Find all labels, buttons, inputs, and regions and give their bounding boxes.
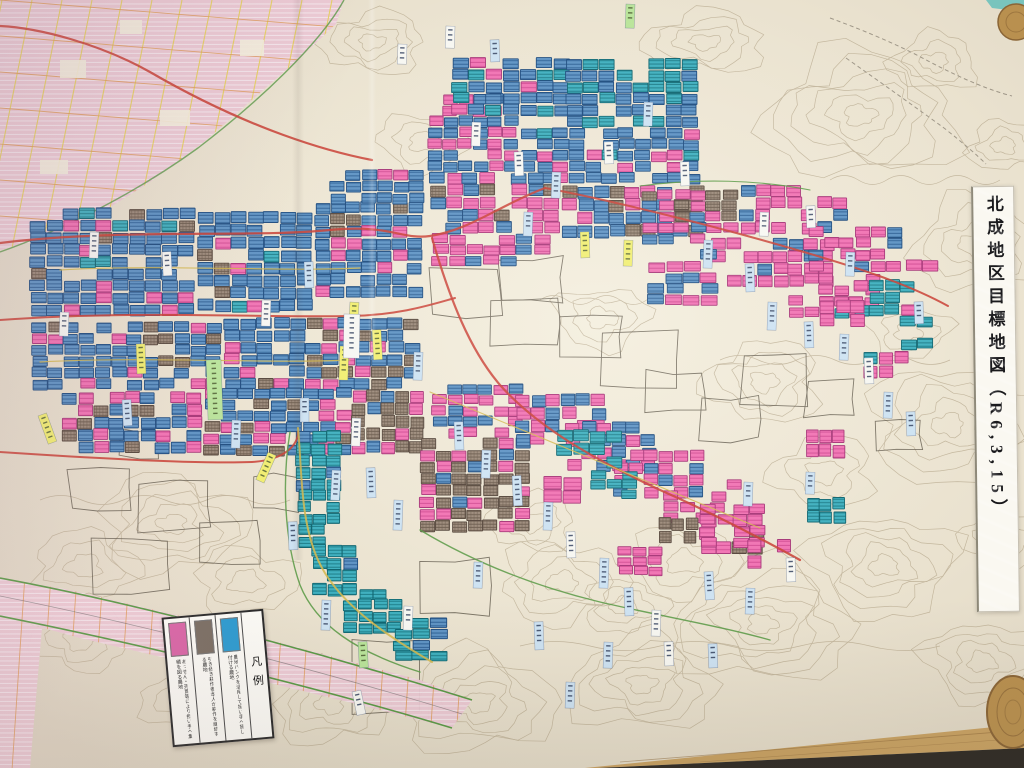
parcel bbox=[200, 226, 215, 237]
parcel bbox=[643, 235, 657, 244]
parcel bbox=[30, 280, 45, 290]
parcel bbox=[564, 478, 581, 490]
parcel bbox=[454, 93, 469, 103]
parcel bbox=[430, 172, 445, 183]
parcel bbox=[641, 435, 654, 446]
parcel bbox=[684, 151, 699, 161]
parcel bbox=[305, 344, 320, 354]
parcel bbox=[378, 181, 392, 191]
parcel bbox=[198, 237, 213, 248]
parcel bbox=[583, 106, 598, 116]
parcel bbox=[537, 70, 552, 80]
parcel bbox=[488, 139, 501, 149]
map-label-strip bbox=[206, 359, 223, 419]
parcel bbox=[432, 406, 446, 415]
parcel bbox=[160, 378, 174, 388]
parcel bbox=[742, 185, 756, 196]
parcel bbox=[723, 190, 737, 199]
parcel bbox=[377, 274, 391, 284]
parcel bbox=[545, 222, 560, 233]
parcel bbox=[869, 305, 883, 315]
parcel bbox=[468, 104, 483, 114]
parcel bbox=[684, 141, 699, 151]
parcel bbox=[47, 269, 62, 279]
parcel bbox=[741, 223, 755, 234]
parcel bbox=[546, 408, 559, 419]
parcel bbox=[319, 389, 334, 399]
parcel bbox=[689, 487, 702, 497]
parcel bbox=[403, 319, 418, 329]
parcel bbox=[499, 461, 513, 471]
parcel bbox=[146, 245, 161, 255]
parcel bbox=[590, 443, 605, 454]
map-label-strip bbox=[664, 642, 674, 666]
parcel bbox=[290, 343, 305, 353]
parcel bbox=[537, 129, 552, 139]
parcel bbox=[569, 173, 584, 183]
parcel bbox=[722, 201, 736, 210]
parcel bbox=[396, 441, 409, 452]
parcel bbox=[553, 162, 568, 172]
parcel bbox=[453, 497, 467, 507]
parcel bbox=[820, 301, 834, 313]
parcel bbox=[512, 184, 527, 195]
parcel bbox=[317, 275, 331, 285]
parcel bbox=[622, 490, 636, 498]
map-label-strip bbox=[122, 400, 132, 426]
parcel bbox=[503, 128, 516, 138]
parcel bbox=[871, 227, 885, 237]
parcel bbox=[819, 274, 833, 283]
parcel bbox=[469, 82, 484, 92]
parcel bbox=[373, 613, 386, 623]
map-label-strip bbox=[745, 588, 755, 614]
parcel bbox=[264, 276, 279, 287]
parcel bbox=[191, 356, 205, 366]
parcel bbox=[666, 295, 682, 305]
parcel bbox=[517, 435, 530, 446]
parcel bbox=[448, 173, 463, 184]
parcel bbox=[464, 185, 479, 196]
parcel bbox=[500, 245, 515, 254]
parcel bbox=[748, 556, 761, 568]
map-label-strip bbox=[551, 172, 561, 198]
parcel bbox=[178, 293, 193, 303]
parcel bbox=[327, 559, 341, 570]
parcel bbox=[683, 117, 698, 127]
parcel bbox=[444, 163, 457, 173]
parcel bbox=[607, 480, 621, 488]
parcel bbox=[563, 491, 580, 503]
parcel bbox=[80, 305, 95, 315]
parcel bbox=[282, 251, 297, 262]
parcel bbox=[635, 150, 650, 160]
parcel bbox=[394, 250, 408, 260]
parcel bbox=[48, 293, 63, 303]
parcel bbox=[393, 286, 407, 296]
parcel bbox=[420, 510, 434, 520]
map-label-strip bbox=[845, 252, 855, 276]
parcel bbox=[315, 240, 329, 250]
parcel bbox=[610, 187, 624, 198]
parcel bbox=[188, 405, 202, 416]
parcel bbox=[431, 186, 446, 197]
parcel bbox=[515, 521, 529, 531]
map-label-strip bbox=[643, 102, 653, 126]
parcel bbox=[393, 194, 407, 204]
parcel bbox=[504, 82, 519, 92]
parcel bbox=[625, 187, 639, 198]
parcel bbox=[362, 262, 376, 272]
parcel bbox=[81, 345, 95, 355]
map-label-strip bbox=[372, 330, 383, 360]
map-label-strip bbox=[304, 262, 314, 288]
parcel bbox=[331, 273, 345, 283]
parcel bbox=[408, 215, 422, 225]
parcel bbox=[47, 256, 62, 266]
parcel bbox=[488, 117, 501, 127]
parcel bbox=[622, 480, 636, 488]
map-label-strip bbox=[413, 352, 423, 380]
parcel bbox=[413, 641, 429, 650]
parcel bbox=[97, 270, 112, 280]
parcel bbox=[353, 391, 366, 402]
parcel bbox=[128, 322, 142, 332]
parcel bbox=[431, 629, 447, 638]
parcel bbox=[666, 82, 681, 92]
parcel bbox=[359, 624, 372, 634]
parcel bbox=[690, 475, 703, 485]
parcel bbox=[886, 292, 900, 302]
map-label-strip bbox=[330, 470, 341, 500]
parcel bbox=[706, 212, 720, 221]
parcel bbox=[591, 471, 605, 479]
parcel bbox=[618, 547, 631, 555]
parcel bbox=[453, 69, 468, 79]
parcel bbox=[561, 394, 574, 405]
parcel bbox=[527, 198, 542, 209]
parcel bbox=[483, 438, 497, 448]
parcel bbox=[49, 335, 63, 345]
parcel bbox=[618, 151, 633, 161]
parcel bbox=[437, 509, 451, 519]
parcel bbox=[172, 417, 186, 428]
parcel bbox=[187, 442, 201, 453]
parcel bbox=[820, 313, 834, 325]
parcel bbox=[79, 442, 93, 453]
map-label-strip bbox=[358, 642, 368, 668]
parcel bbox=[484, 498, 498, 508]
parcel bbox=[159, 334, 173, 344]
parcel bbox=[478, 385, 492, 394]
parcel bbox=[734, 538, 749, 547]
parcel bbox=[642, 192, 656, 201]
parcel bbox=[147, 293, 162, 303]
parcel bbox=[363, 251, 377, 261]
map-label-strip bbox=[703, 240, 713, 268]
parcel bbox=[631, 450, 644, 460]
parcel bbox=[409, 287, 423, 297]
map-label-strip bbox=[680, 162, 690, 186]
parcel bbox=[674, 476, 687, 486]
parcel bbox=[342, 546, 356, 557]
parcel bbox=[819, 285, 833, 294]
parcel bbox=[281, 212, 296, 223]
parcel bbox=[888, 238, 902, 248]
parcel bbox=[343, 583, 357, 594]
parcel bbox=[727, 238, 741, 249]
parcel bbox=[464, 394, 478, 403]
parcel bbox=[648, 294, 664, 304]
parcel bbox=[587, 150, 602, 160]
parcel bbox=[327, 430, 341, 441]
parcel bbox=[240, 331, 255, 341]
parcel bbox=[113, 367, 127, 377]
parcel bbox=[857, 237, 871, 247]
parcel bbox=[633, 548, 646, 556]
parcel bbox=[221, 411, 236, 421]
parcel bbox=[247, 225, 262, 236]
parcel bbox=[145, 281, 160, 291]
parcel bbox=[728, 275, 742, 286]
parcel bbox=[367, 428, 380, 439]
parcel bbox=[255, 422, 270, 432]
parcel bbox=[643, 223, 657, 232]
map-label-strip bbox=[767, 302, 777, 330]
parcel bbox=[790, 308, 804, 317]
map-label-strip bbox=[883, 392, 893, 418]
parcel bbox=[870, 293, 884, 303]
legend-swatch-pink bbox=[168, 622, 189, 657]
parcel bbox=[594, 201, 608, 212]
parcel bbox=[323, 319, 338, 329]
parcel bbox=[232, 301, 247, 312]
parcel bbox=[355, 366, 370, 376]
parcel bbox=[775, 276, 789, 287]
parcel bbox=[591, 481, 605, 489]
parcel bbox=[313, 490, 325, 500]
parcel bbox=[94, 429, 108, 440]
parcel bbox=[253, 446, 268, 456]
parcel bbox=[377, 251, 391, 261]
map-label-strip bbox=[623, 240, 633, 266]
parcel bbox=[113, 346, 127, 356]
parcel bbox=[562, 226, 576, 237]
parcel bbox=[568, 83, 583, 93]
parcel bbox=[592, 409, 605, 420]
parcel bbox=[95, 418, 109, 429]
parcel bbox=[95, 305, 110, 315]
map-label-strip bbox=[565, 682, 575, 708]
parcel bbox=[516, 508, 530, 518]
parcel bbox=[659, 518, 671, 529]
parcel bbox=[360, 590, 373, 600]
parcel bbox=[683, 273, 699, 283]
parcel bbox=[409, 442, 422, 453]
parcel bbox=[902, 340, 917, 350]
parcel bbox=[582, 118, 597, 128]
parcel bbox=[706, 191, 720, 200]
parcel bbox=[175, 357, 189, 367]
parcel bbox=[33, 380, 47, 390]
parcel bbox=[94, 406, 108, 417]
parcel bbox=[407, 264, 421, 274]
parcel bbox=[224, 353, 239, 363]
parcel bbox=[142, 418, 156, 429]
parcel bbox=[327, 513, 339, 523]
legend-swatch-blue bbox=[219, 617, 240, 652]
parcel bbox=[649, 547, 662, 555]
parcel bbox=[833, 446, 845, 458]
parcel bbox=[616, 106, 631, 116]
parcel bbox=[554, 139, 569, 149]
parcel bbox=[459, 116, 472, 126]
parcel bbox=[382, 429, 395, 440]
parcel bbox=[499, 474, 513, 484]
parcel bbox=[373, 590, 386, 600]
parcel bbox=[207, 323, 221, 333]
parcel bbox=[531, 408, 544, 419]
parcel bbox=[337, 410, 352, 420]
parcel bbox=[270, 411, 285, 421]
parcel bbox=[30, 222, 45, 232]
parcel bbox=[486, 69, 501, 79]
parcel bbox=[62, 418, 76, 429]
parcel bbox=[483, 255, 498, 264]
parcel bbox=[381, 403, 394, 414]
parcel bbox=[328, 545, 342, 556]
parcel bbox=[665, 71, 680, 81]
parcel bbox=[618, 558, 631, 566]
parcel bbox=[388, 367, 403, 377]
parcel bbox=[578, 212, 592, 223]
parcel bbox=[31, 292, 46, 302]
parcel bbox=[377, 193, 391, 203]
parcel bbox=[674, 200, 688, 209]
parcel bbox=[377, 240, 391, 250]
parcel bbox=[701, 538, 716, 547]
parcel bbox=[833, 198, 847, 209]
parcel bbox=[32, 346, 46, 356]
parcel bbox=[463, 417, 477, 426]
parcel bbox=[667, 93, 682, 103]
parcel bbox=[533, 396, 546, 407]
parcel bbox=[96, 344, 110, 354]
parcel bbox=[393, 274, 407, 284]
parcel bbox=[65, 345, 79, 355]
parcel bbox=[362, 216, 376, 226]
parcel bbox=[81, 220, 96, 230]
parcel bbox=[408, 250, 422, 260]
parcel bbox=[389, 611, 402, 621]
parcel bbox=[851, 314, 865, 326]
parcel bbox=[129, 220, 144, 230]
parcel bbox=[327, 502, 339, 512]
parcel bbox=[330, 287, 344, 297]
parcel bbox=[788, 264, 802, 275]
parcel bbox=[394, 215, 408, 225]
parcel bbox=[591, 394, 604, 405]
parcel bbox=[918, 338, 933, 348]
parcel bbox=[421, 474, 435, 484]
parcel bbox=[833, 498, 845, 509]
parcel bbox=[387, 378, 402, 388]
map-label-strip bbox=[804, 322, 814, 348]
parcel bbox=[659, 235, 673, 244]
parcel bbox=[484, 486, 498, 496]
parcel bbox=[486, 83, 501, 93]
parcel bbox=[429, 128, 442, 138]
map-label-strip bbox=[403, 606, 413, 630]
parcel bbox=[79, 393, 93, 404]
parcel bbox=[582, 95, 597, 105]
parcel bbox=[460, 127, 473, 137]
parcel bbox=[600, 93, 615, 103]
parcel bbox=[389, 599, 402, 609]
parcel bbox=[291, 319, 306, 329]
parcel bbox=[143, 335, 157, 345]
parcel bbox=[626, 422, 639, 433]
parcel bbox=[249, 238, 264, 249]
parcel bbox=[529, 173, 544, 184]
parcel bbox=[396, 651, 412, 660]
parcel bbox=[444, 128, 457, 138]
parcel bbox=[358, 599, 371, 609]
parcel bbox=[758, 252, 772, 263]
parcel bbox=[96, 208, 111, 218]
parcel bbox=[396, 392, 409, 403]
parcel bbox=[444, 118, 457, 128]
parcel bbox=[216, 238, 231, 249]
parcel bbox=[437, 498, 451, 508]
parcel bbox=[626, 212, 640, 223]
parcel bbox=[503, 104, 518, 114]
parcel bbox=[362, 225, 376, 235]
parcel bbox=[579, 199, 593, 210]
parcel bbox=[480, 197, 495, 208]
parcel bbox=[509, 384, 523, 393]
parcel bbox=[409, 170, 423, 180]
parcel bbox=[595, 186, 609, 197]
parcel bbox=[290, 331, 305, 341]
parcel bbox=[79, 405, 93, 416]
parcel bbox=[179, 281, 194, 291]
parcel bbox=[410, 193, 424, 203]
parcel bbox=[626, 225, 640, 236]
parcel bbox=[458, 161, 471, 171]
parcel bbox=[316, 286, 330, 296]
parcel bbox=[700, 515, 715, 524]
parcel bbox=[676, 190, 690, 199]
parcel bbox=[332, 238, 346, 248]
map-label-strip bbox=[914, 302, 924, 324]
parcel bbox=[668, 173, 683, 183]
parcel bbox=[805, 307, 819, 316]
parcel bbox=[282, 237, 297, 248]
parcel bbox=[214, 276, 229, 287]
parcel bbox=[371, 367, 386, 377]
parcel bbox=[231, 237, 246, 248]
parcel bbox=[198, 250, 213, 261]
parcel bbox=[452, 451, 466, 461]
parcel bbox=[322, 368, 337, 378]
parcel bbox=[835, 286, 849, 295]
parcel bbox=[553, 83, 568, 93]
parcel bbox=[590, 432, 605, 443]
parcel bbox=[316, 228, 330, 238]
parcel bbox=[633, 83, 648, 93]
parcel bbox=[504, 94, 519, 104]
